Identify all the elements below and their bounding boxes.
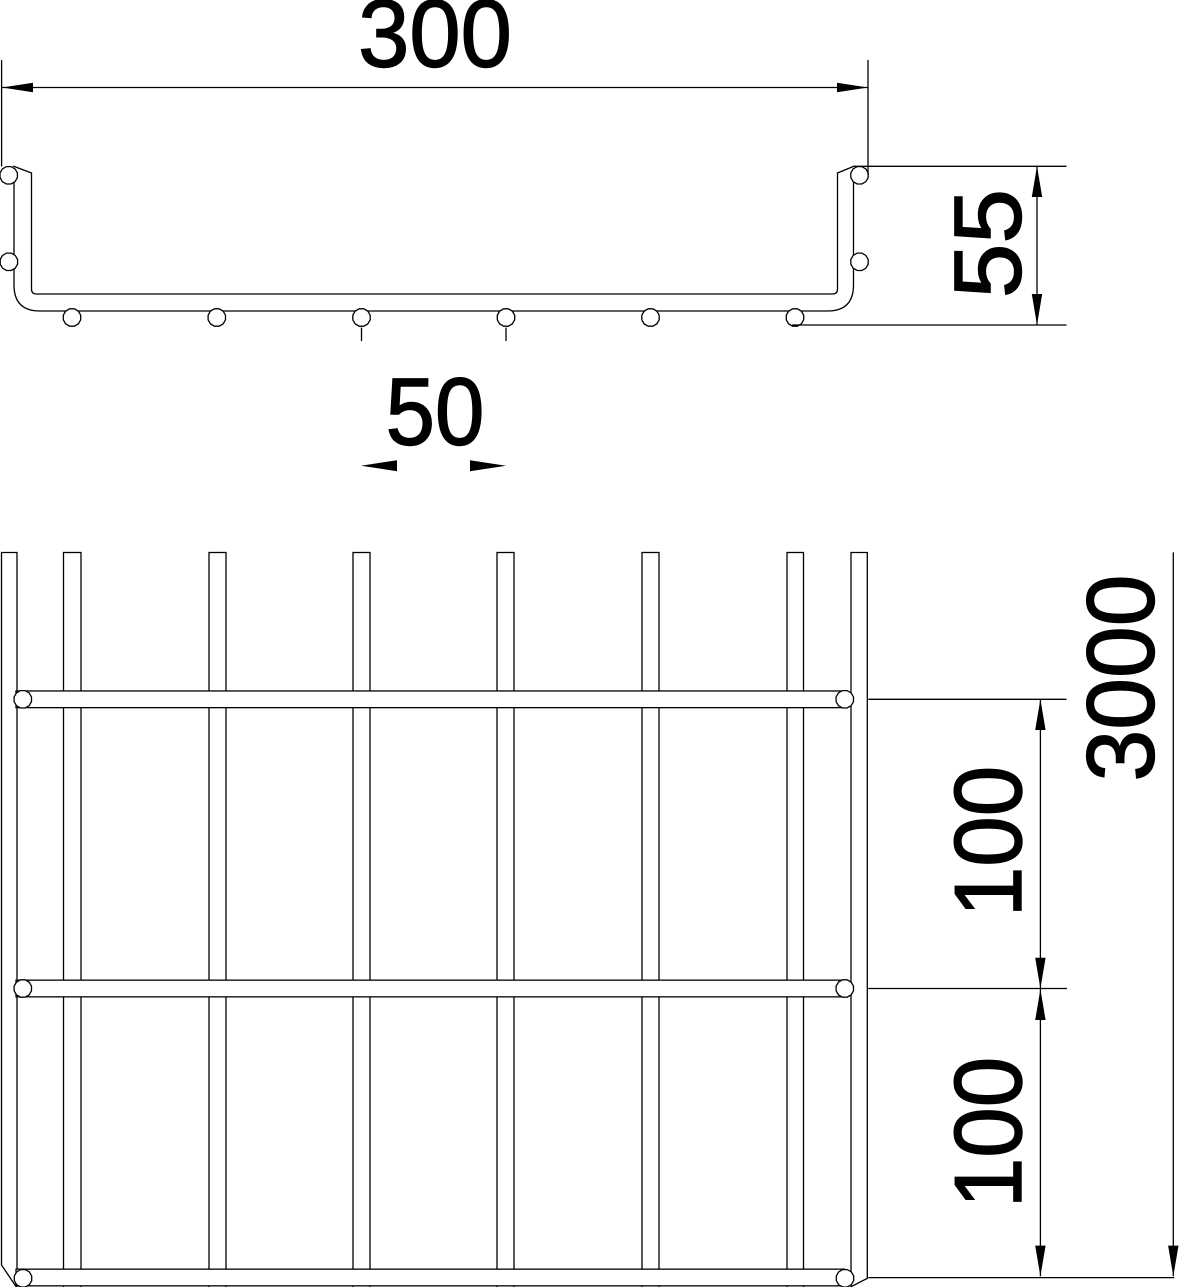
svg-text:3000: 3000 [1067, 575, 1173, 782]
svg-text:100: 100 [935, 766, 1042, 917]
svg-text:100: 100 [935, 1057, 1042, 1208]
svg-text:300: 300 [358, 0, 512, 87]
svg-text:55: 55 [934, 189, 1041, 298]
svg-text:50: 50 [386, 359, 485, 466]
